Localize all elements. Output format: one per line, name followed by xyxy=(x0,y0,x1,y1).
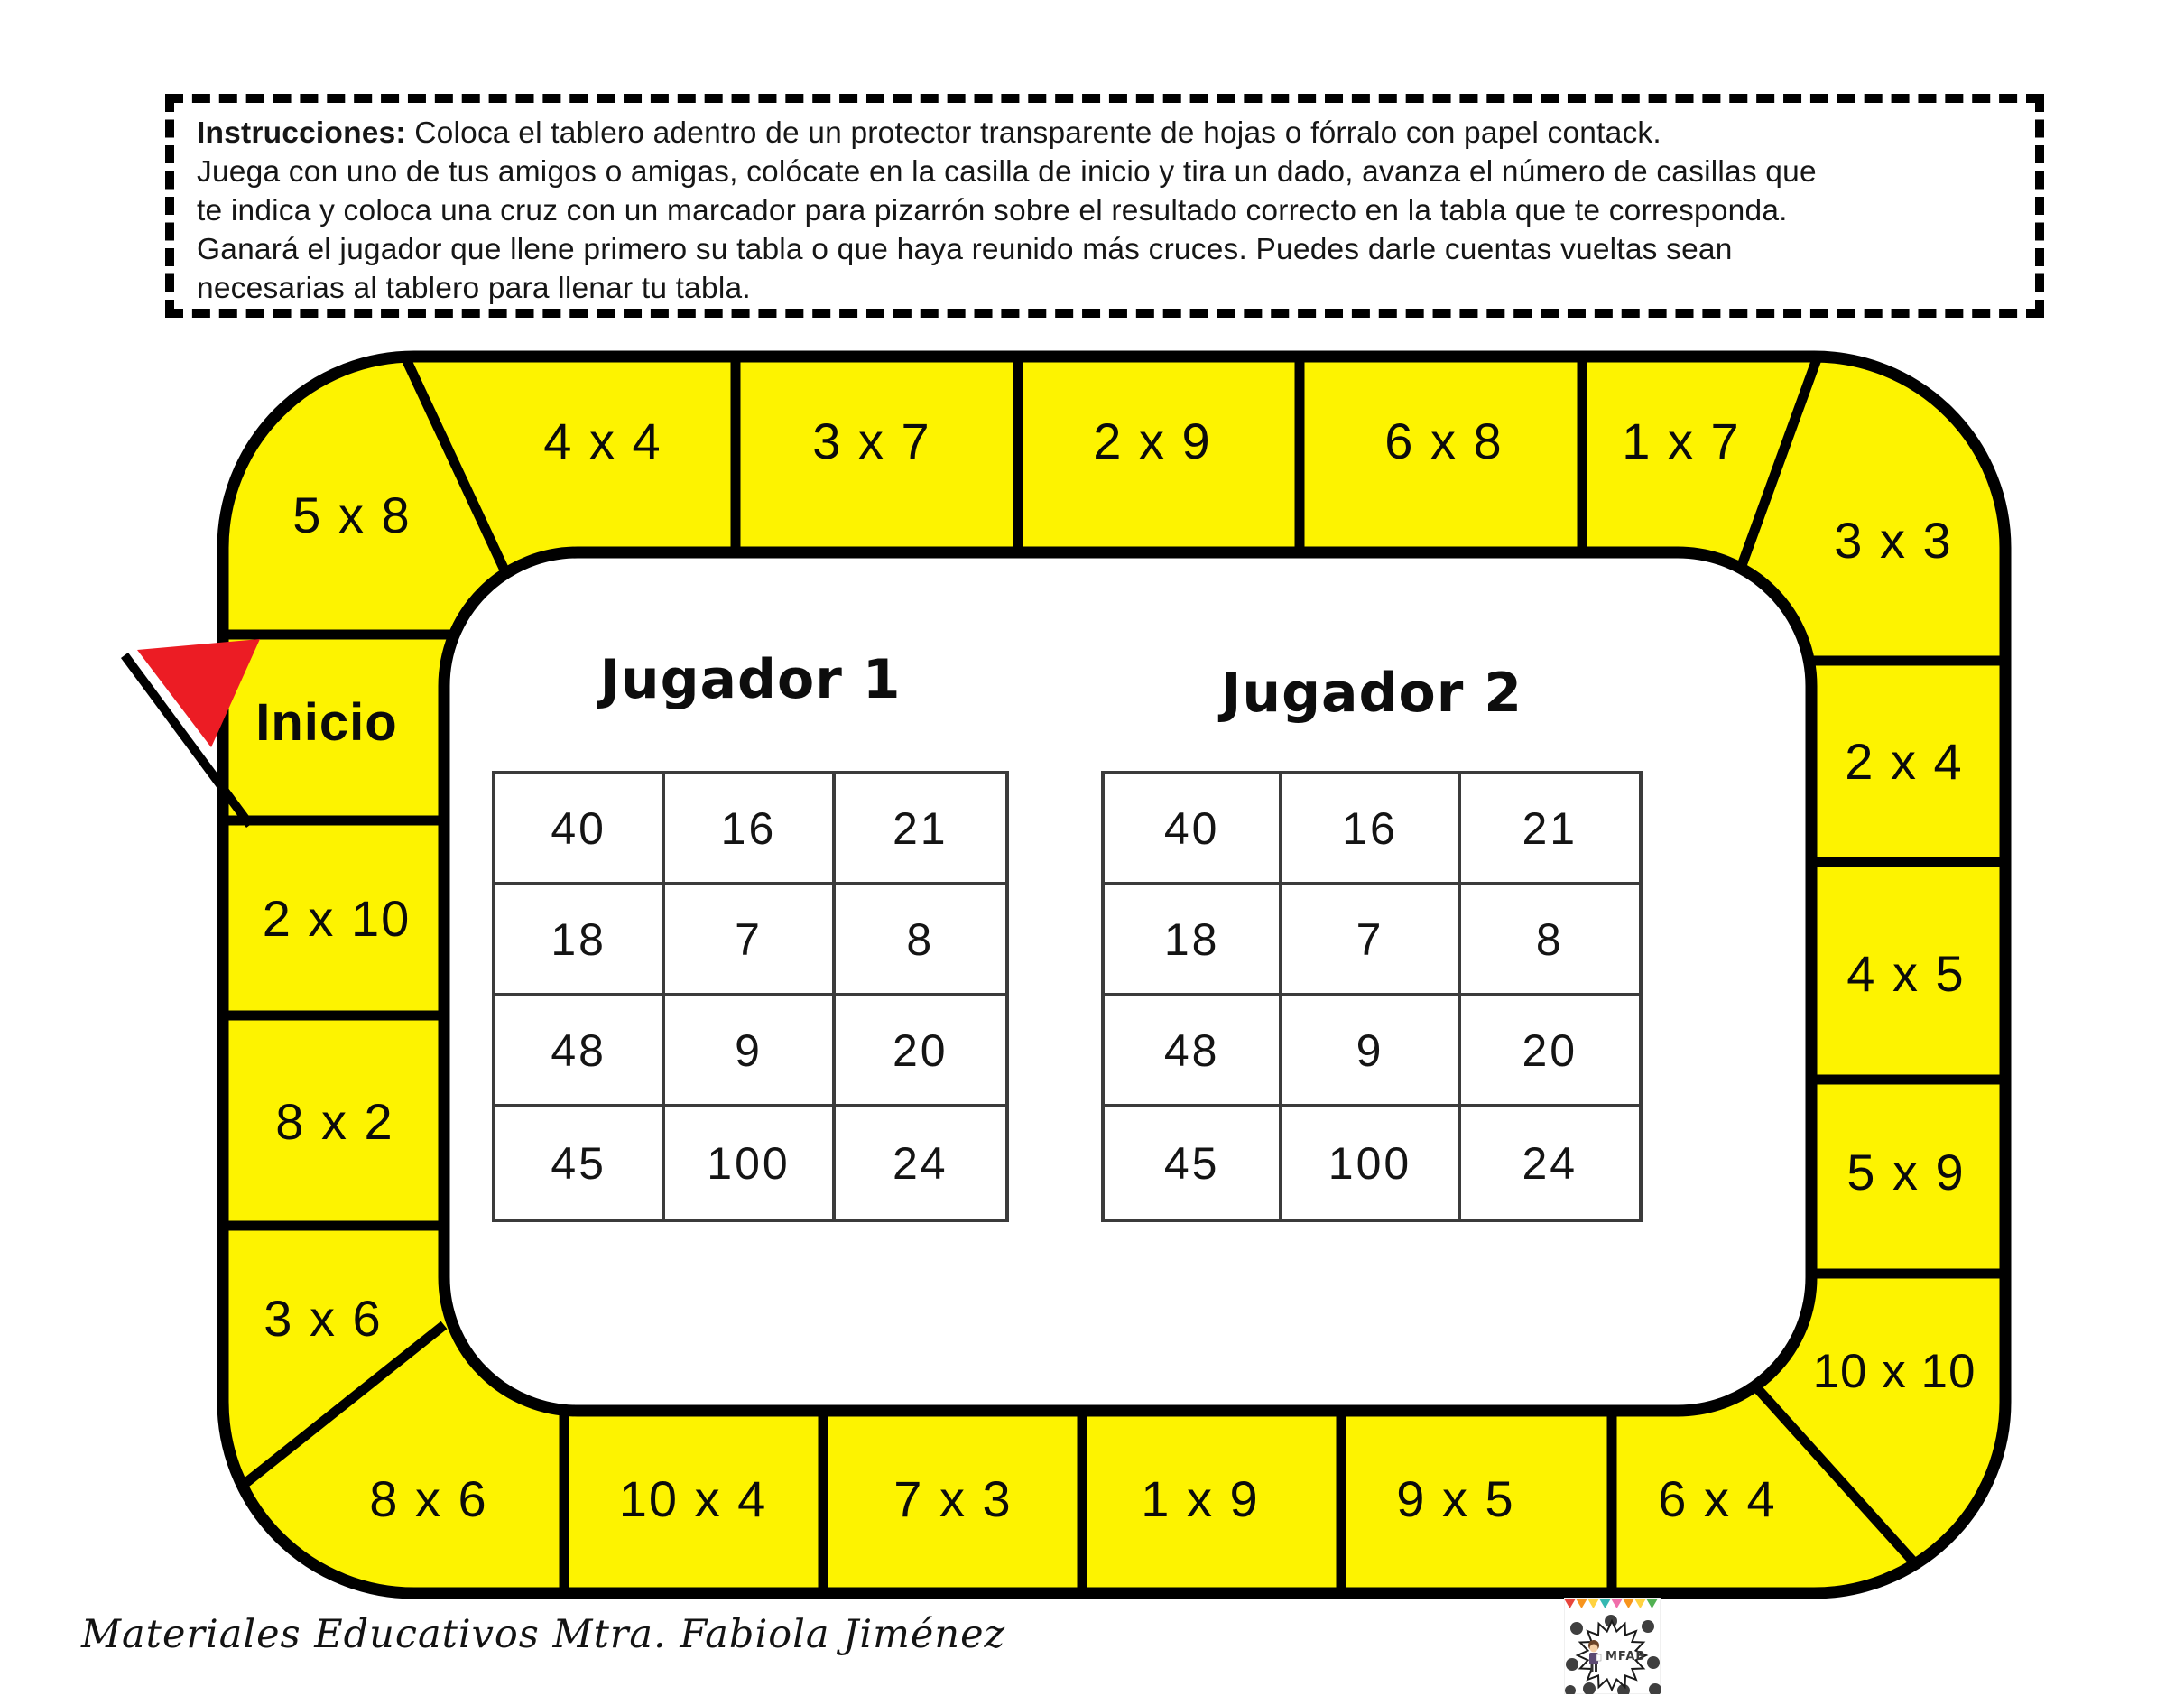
player1-cell-r4c3[interactable]: 24 xyxy=(836,1107,1005,1219)
player1-cell-r4c1[interactable]: 45 xyxy=(495,1107,665,1219)
player2-cell-r2c2[interactable]: 7 xyxy=(1282,885,1460,996)
player2-cell-r3c3[interactable]: 20 xyxy=(1461,996,1639,1107)
board-cell-6x4[interactable]: 6 x 4 xyxy=(1658,1470,1776,1527)
board-cell-6x8[interactable]: 6 x 8 xyxy=(1384,412,1503,469)
board-cell-10x4[interactable]: 10 x 4 xyxy=(619,1470,768,1527)
board-cell-4x5[interactable]: 4 x 5 xyxy=(1846,945,1965,1002)
player1-cell-r1c1[interactable]: 40 xyxy=(495,774,665,885)
player1-cell-r2c2[interactable]: 7 xyxy=(665,885,835,996)
player1-cell-r3c1[interactable]: 48 xyxy=(495,996,665,1107)
player1-cell-r3c3[interactable]: 20 xyxy=(836,996,1005,1107)
board-cell-3x3[interactable]: 3 x 3 xyxy=(1834,512,1952,569)
player2-cell-r2c3[interactable]: 8 xyxy=(1461,885,1639,996)
player1-cell-r3c2[interactable]: 9 xyxy=(665,996,835,1107)
player2-cell-r4c1[interactable]: 45 xyxy=(1105,1107,1282,1219)
board-cell-8x6[interactable]: 8 x 6 xyxy=(369,1470,487,1527)
player1-cell-r1c3[interactable]: 21 xyxy=(836,774,1005,885)
player2-cell-r2c1[interactable]: 18 xyxy=(1105,885,1282,996)
player2-table: 40 16 21 18 7 8 48 9 20 45 100 24 xyxy=(1101,771,1643,1222)
board-cell-2x9[interactable]: 2 x 9 xyxy=(1093,412,1211,469)
board-cell-1x7[interactable]: 1 x 7 xyxy=(1622,412,1740,469)
player2-title: Jugador 2 xyxy=(1101,662,1643,725)
board-cell-5x9[interactable]: 5 x 9 xyxy=(1846,1144,1965,1200)
player2-cell-r1c2[interactable]: 16 xyxy=(1282,774,1460,885)
player1-cell-r1c2[interactable]: 16 xyxy=(665,774,835,885)
player1-title: Jugador 1 xyxy=(492,648,1009,711)
player1-cell-r2c1[interactable]: 18 xyxy=(495,885,665,996)
publisher-logo: MFAB xyxy=(1564,1598,1661,1694)
player2-cell-r3c1[interactable]: 48 xyxy=(1105,996,1282,1107)
logo-text: MFAB xyxy=(1606,1650,1645,1664)
board-cell-4x4[interactable]: 4 x 4 xyxy=(543,412,662,469)
player2-cell-r1c1[interactable]: 40 xyxy=(1105,774,1282,885)
player2-cell-r3c2[interactable]: 9 xyxy=(1282,996,1460,1107)
player1-table: 40 16 21 18 7 8 48 9 20 45 100 24 xyxy=(492,771,1009,1222)
player2-cell-r4c2[interactable]: 100 xyxy=(1282,1107,1460,1219)
game-board: Inicio 5 x 8 4 x 4 3 x 7 2 x 9 6 x 8 1 x… xyxy=(0,0,2184,1696)
board-cell-5x8[interactable]: 5 x 8 xyxy=(292,487,411,543)
board-cell-9x5[interactable]: 9 x 5 xyxy=(1396,1470,1514,1527)
board-cell-10x10[interactable]: 10 x 10 xyxy=(1813,1345,1976,1398)
board-cell-1x9[interactable]: 1 x 9 xyxy=(1141,1470,1259,1527)
player2-cell-r4c3[interactable]: 24 xyxy=(1461,1107,1639,1219)
player2-cell-r1c3[interactable]: 21 xyxy=(1461,774,1639,885)
board-cell-2x10[interactable]: 2 x 10 xyxy=(263,890,412,947)
board-cell-8x2[interactable]: 8 x 2 xyxy=(275,1093,393,1150)
board-cell-7x3[interactable]: 7 x 3 xyxy=(893,1470,1012,1527)
player1-cell-r2c3[interactable]: 8 xyxy=(836,885,1005,996)
board-cell-start[interactable]: Inicio xyxy=(255,693,397,752)
board-cell-3x7[interactable]: 3 x 7 xyxy=(812,412,930,469)
footer-credit: Materiales Educativos Mtra. Fabiola Jimé… xyxy=(81,1612,1005,1657)
board-cell-2x4[interactable]: 2 x 4 xyxy=(1845,733,1963,790)
worksheet-page: Instrucciones: Coloca el tablero adentro… xyxy=(0,0,2184,1696)
board-cell-3x6[interactable]: 3 x 6 xyxy=(264,1290,382,1347)
player1-cell-r4c2[interactable]: 100 xyxy=(665,1107,835,1219)
